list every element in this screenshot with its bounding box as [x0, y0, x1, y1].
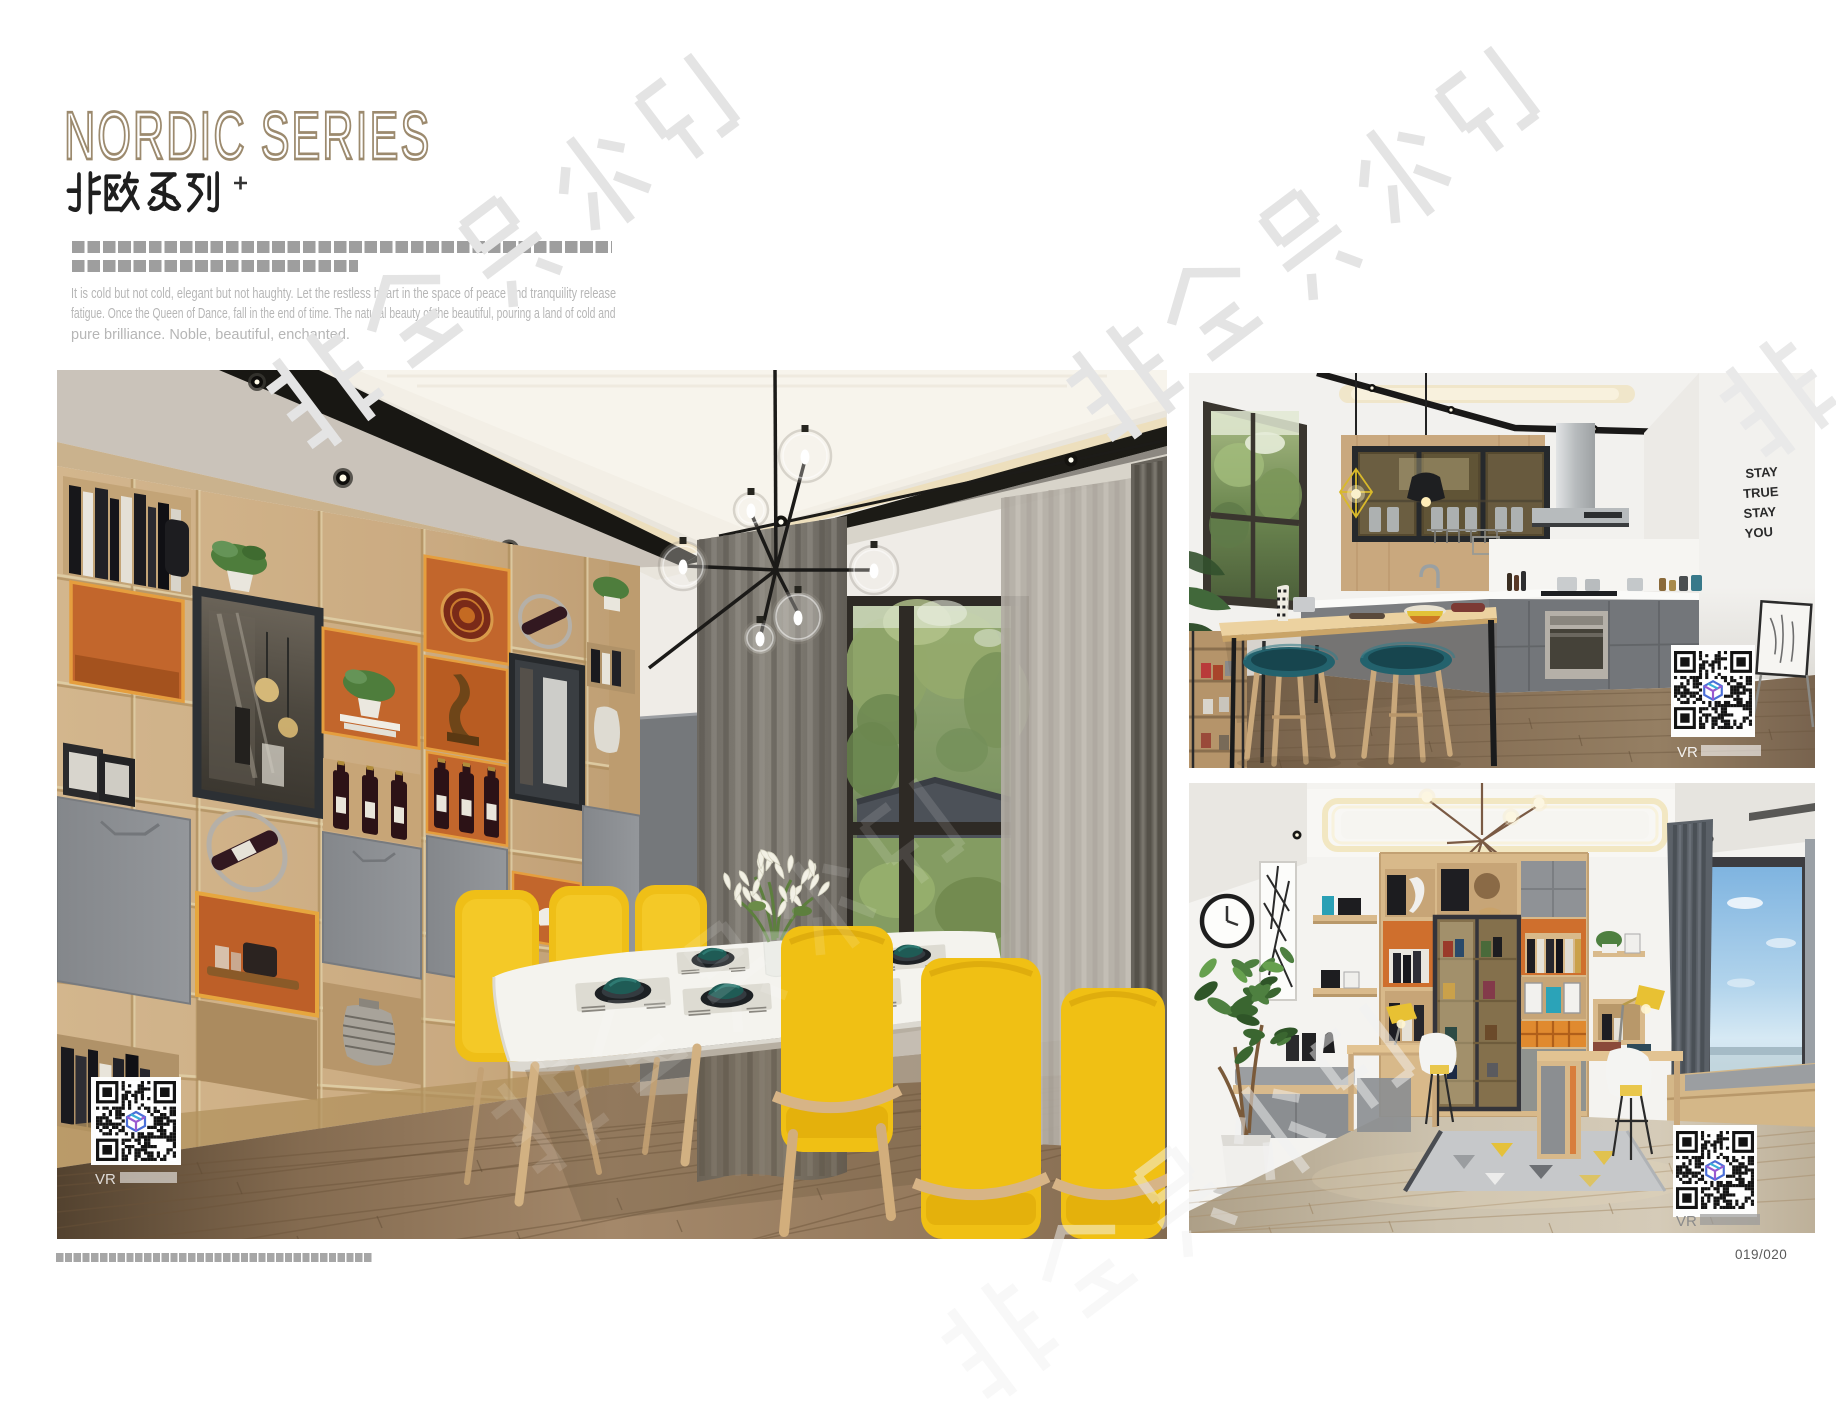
svg-text:VR: VR — [1676, 1213, 1697, 1230]
svg-text:TRUE: TRUE — [1743, 484, 1780, 501]
svg-text:STAY: STAY — [1743, 504, 1777, 521]
svg-text:YOU: YOU — [1744, 524, 1773, 541]
svg-text:VR: VR — [95, 1171, 116, 1188]
svg-text:VR: VR — [1677, 744, 1698, 761]
